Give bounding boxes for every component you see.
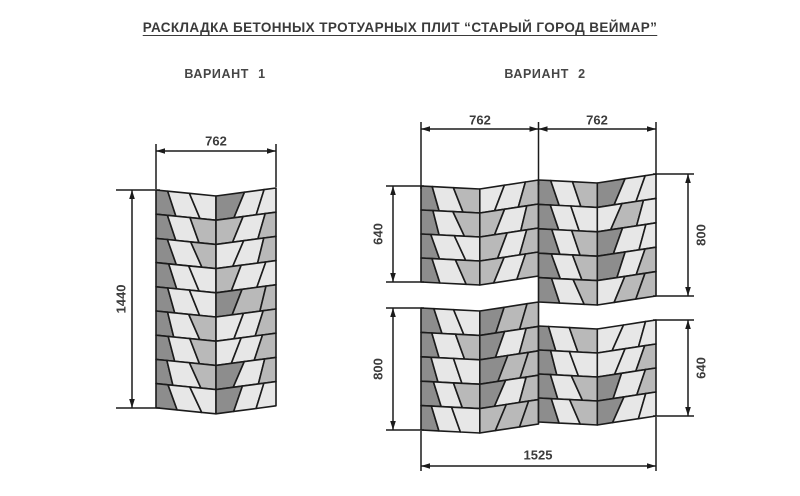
dim-label-v1-height: 1440 [114, 285, 129, 314]
dim-label-v2-width-left: 762 [469, 113, 491, 128]
dim-label-v1-width: 762 [205, 134, 227, 149]
dimension-arrow [421, 126, 430, 132]
dim-label-v2-total-width: 1525 [524, 448, 553, 463]
dimension-arrow [156, 148, 165, 154]
dimension-arrow [530, 126, 539, 132]
dimension-arrow [647, 463, 656, 469]
dim-label-v2-width-right: 762 [586, 113, 608, 128]
dimension-arrow [129, 190, 135, 199]
dimension-arrow [267, 148, 276, 154]
dimension-arrow [685, 320, 691, 329]
dimension-arrow [685, 287, 691, 296]
dim-label-v2-upper-right-height: 800 [694, 224, 709, 246]
dim-label-v2-lower-left-height: 800 [371, 358, 386, 380]
dimension-arrow [539, 126, 548, 132]
dim-label-v2-upper-left-height: 640 [371, 223, 386, 245]
dimension-arrow [390, 421, 396, 430]
dimension-arrow [129, 399, 135, 408]
dimension-arrow [647, 126, 656, 132]
paving-diagram [0, 0, 800, 496]
dim-label-v2-lower-right-height: 640 [694, 357, 709, 379]
dimension-arrow [685, 174, 691, 183]
dimension-arrow [390, 308, 396, 317]
paving-layout-sheet: РАСКЛАДКА БЕТОННЫХ ТРОТУАРНЫХ ПЛИТ “СТАР… [0, 0, 800, 496]
dimension-arrow [390, 186, 396, 195]
dimension-arrow [421, 463, 430, 469]
tile-pattern-layer [156, 174, 656, 433]
dimension-arrow [685, 407, 691, 416]
dimension-arrow [390, 273, 396, 282]
